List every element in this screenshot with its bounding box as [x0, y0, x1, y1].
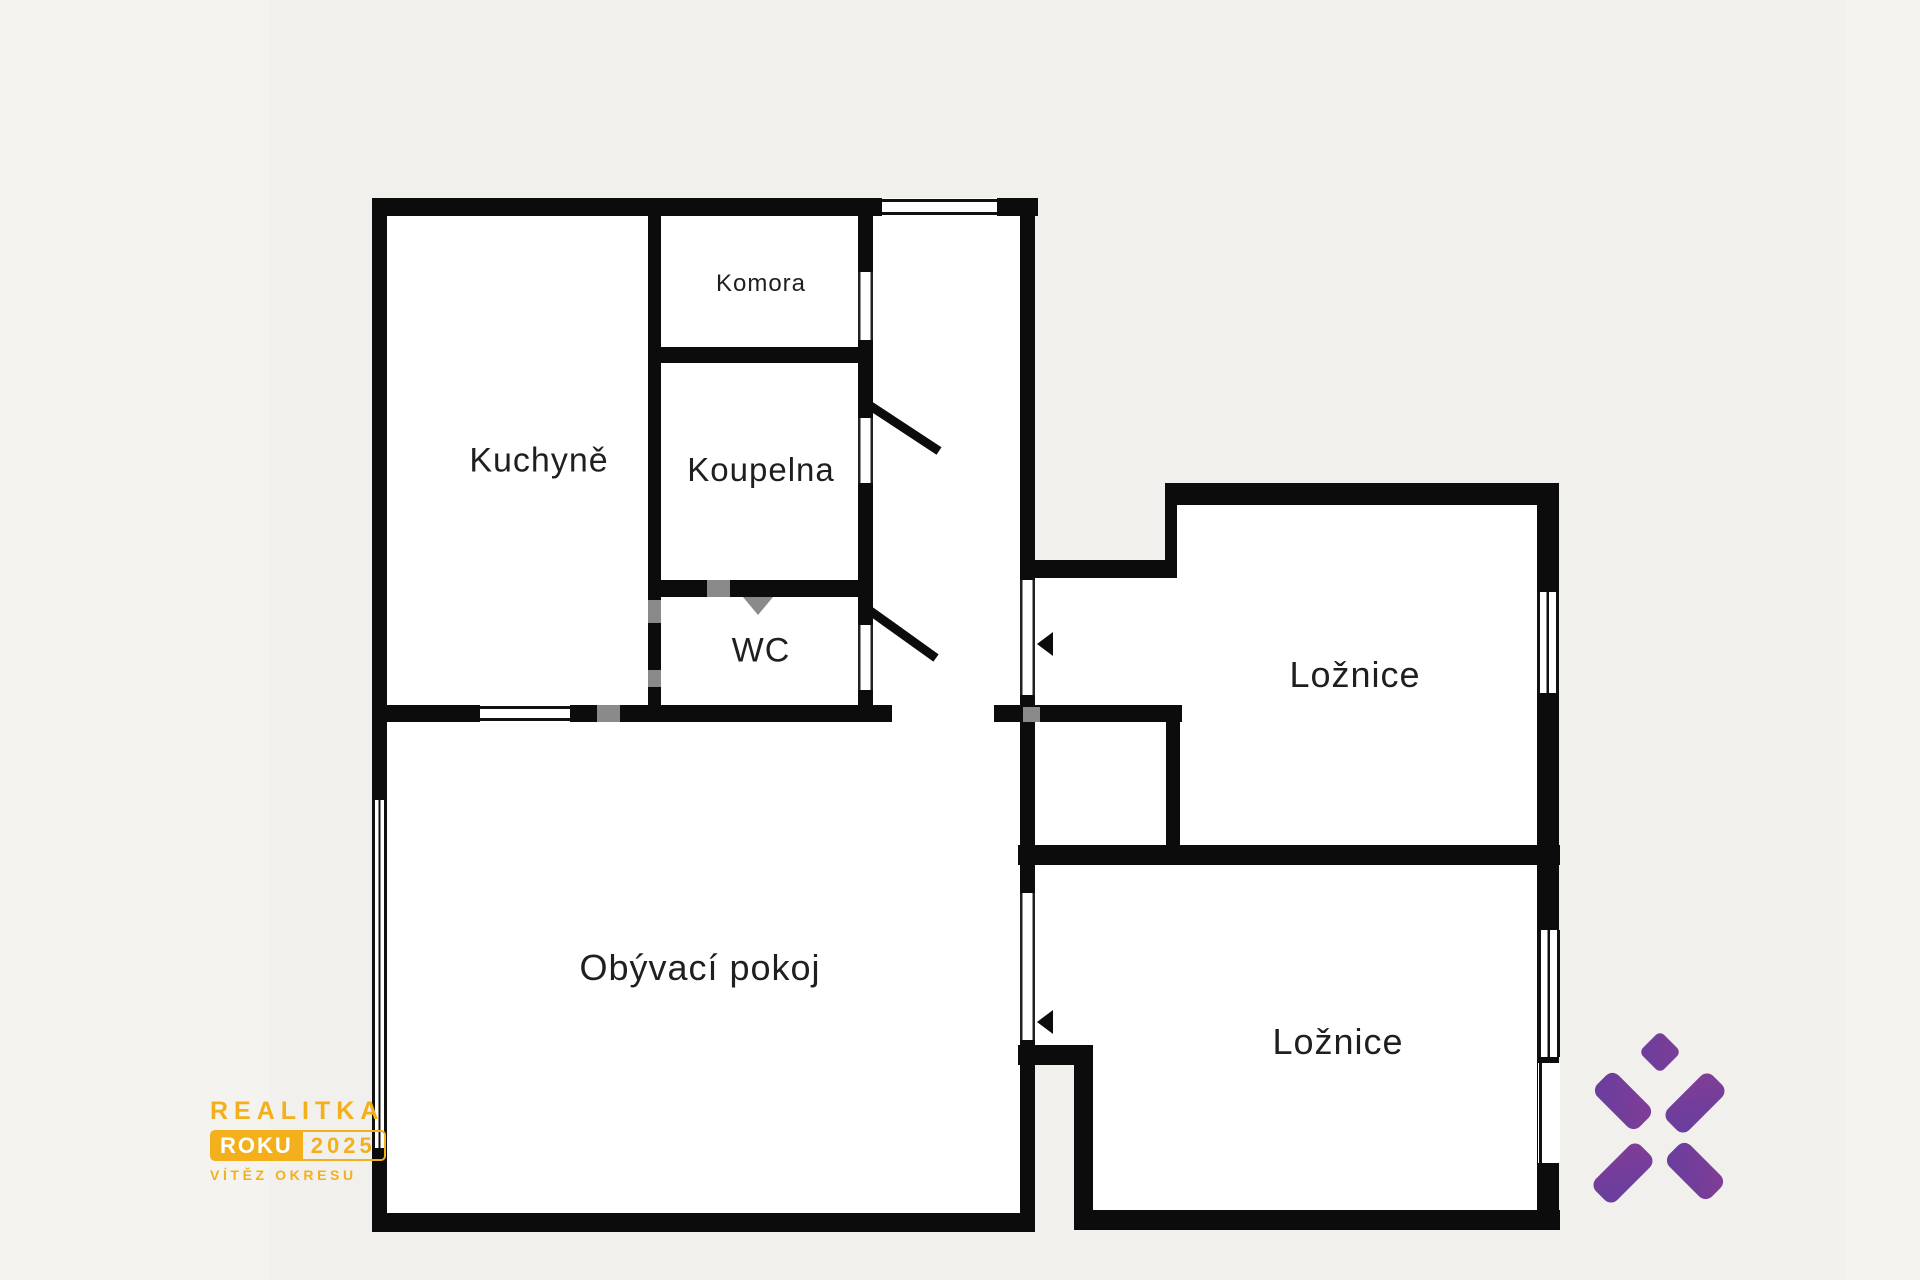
gray-segment — [648, 670, 661, 687]
gray-segment — [648, 600, 661, 623]
door-opening — [1020, 580, 1035, 695]
room-label-komora: Komora — [716, 270, 806, 298]
room-loznice2-floor — [1035, 865, 1538, 1045]
logo-bar — [1663, 1139, 1727, 1203]
award-subtitle: VÍTĚZ OKRESU — [210, 1168, 386, 1182]
award-year-box: 2025 — [303, 1130, 386, 1161]
wall — [1020, 216, 1035, 1232]
closet-floor — [1035, 722, 1166, 845]
wall — [648, 347, 873, 363]
wall — [648, 216, 661, 705]
hallway-floor — [1035, 578, 1166, 705]
wall — [1074, 1045, 1093, 1230]
room-loznice2-floor — [1093, 1045, 1538, 1210]
wall — [1018, 845, 1560, 865]
window-symbol — [372, 800, 387, 1148]
room-label-koupelna: Koupelna — [687, 451, 834, 489]
logo-bar — [1590, 1140, 1656, 1206]
award-year-row: ROKU 2025 — [210, 1130, 386, 1161]
room-label-wc: WC — [732, 632, 791, 671]
award-title: REALITKA — [210, 1099, 386, 1124]
wall — [1165, 483, 1558, 505]
door-opening — [858, 272, 873, 340]
door-opening — [892, 705, 994, 722]
room-label-kuchyne: Kuchyně — [469, 442, 608, 481]
wall — [1074, 1210, 1560, 1230]
logo-diamond — [1639, 1031, 1681, 1073]
exterior-notch — [1035, 1065, 1074, 1232]
door-opening — [1020, 893, 1035, 1040]
logo-bar — [1591, 1069, 1655, 1133]
gray-segment — [1023, 707, 1040, 722]
wall — [372, 1213, 1038, 1232]
wall — [1166, 722, 1180, 845]
door-opening — [858, 625, 873, 690]
window-symbol — [1538, 930, 1560, 1057]
door-opening — [858, 418, 873, 483]
wall — [648, 580, 873, 597]
wall — [1020, 705, 1182, 722]
bedroom1-entry-opening — [1166, 578, 1177, 722]
window-symbol — [480, 705, 570, 722]
balcony-door-opening — [1538, 1063, 1560, 1163]
wall — [1033, 560, 1177, 578]
award-roku-badge: ROKU — [210, 1130, 303, 1161]
award-badge: REALITKA ROKU 2025 VÍTĚZ OKRESU — [210, 1099, 386, 1182]
room-label-obyvaci-pokoj: Obývací pokoj — [579, 947, 820, 989]
gray-segment — [707, 580, 730, 597]
window-symbol — [882, 198, 997, 216]
room-label-loznice-2: Ložnice — [1272, 1021, 1403, 1063]
logo-bar — [1662, 1070, 1728, 1136]
window-symbol — [1537, 592, 1559, 693]
brand-x-icon — [1586, 1026, 1738, 1212]
room-label-loznice-1: Ložnice — [1289, 654, 1420, 696]
screenshot: Kuchyně Komora Koupelna WC Obývací pokoj… — [0, 0, 1920, 1280]
gray-segment — [597, 705, 620, 722]
